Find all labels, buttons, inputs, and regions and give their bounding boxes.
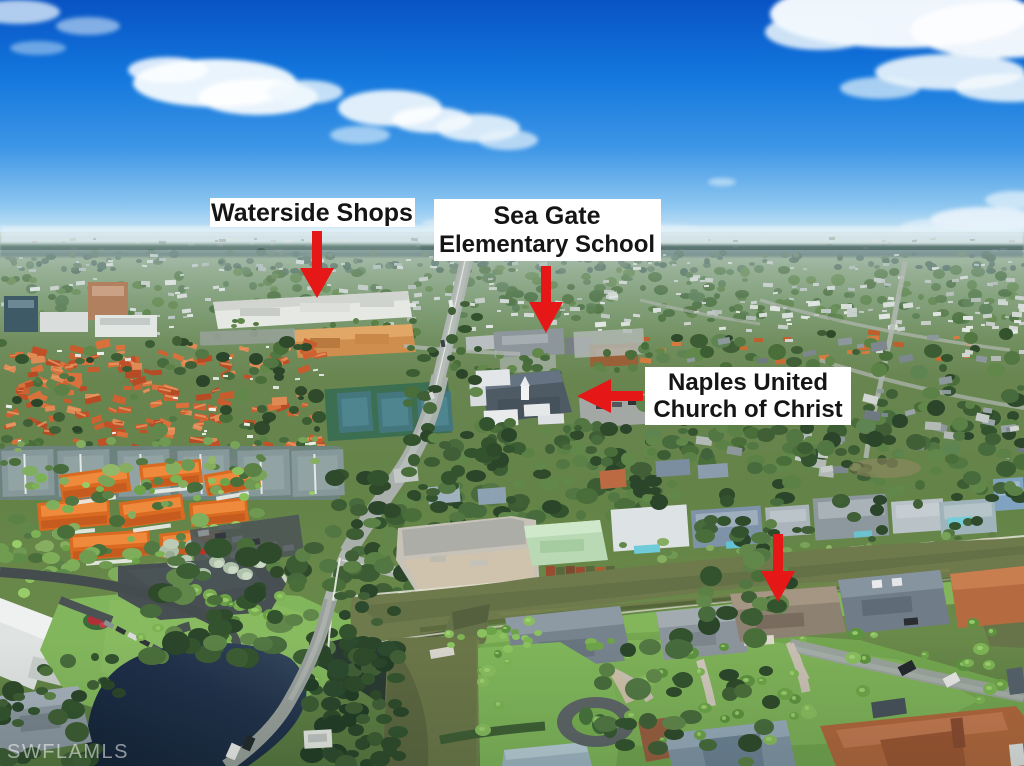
svg-text:Church of Christ: Church of Christ [653, 396, 842, 423]
svg-text:Sea Gate: Sea Gate [493, 202, 600, 230]
svg-text:Elementary School: Elementary School [439, 231, 655, 258]
svg-text:SWFLAMLS: SWFLAMLS [7, 741, 129, 763]
svg-text:Naples United: Naples United [668, 369, 828, 396]
svg-text:Waterside Shops: Waterside Shops [211, 199, 413, 227]
